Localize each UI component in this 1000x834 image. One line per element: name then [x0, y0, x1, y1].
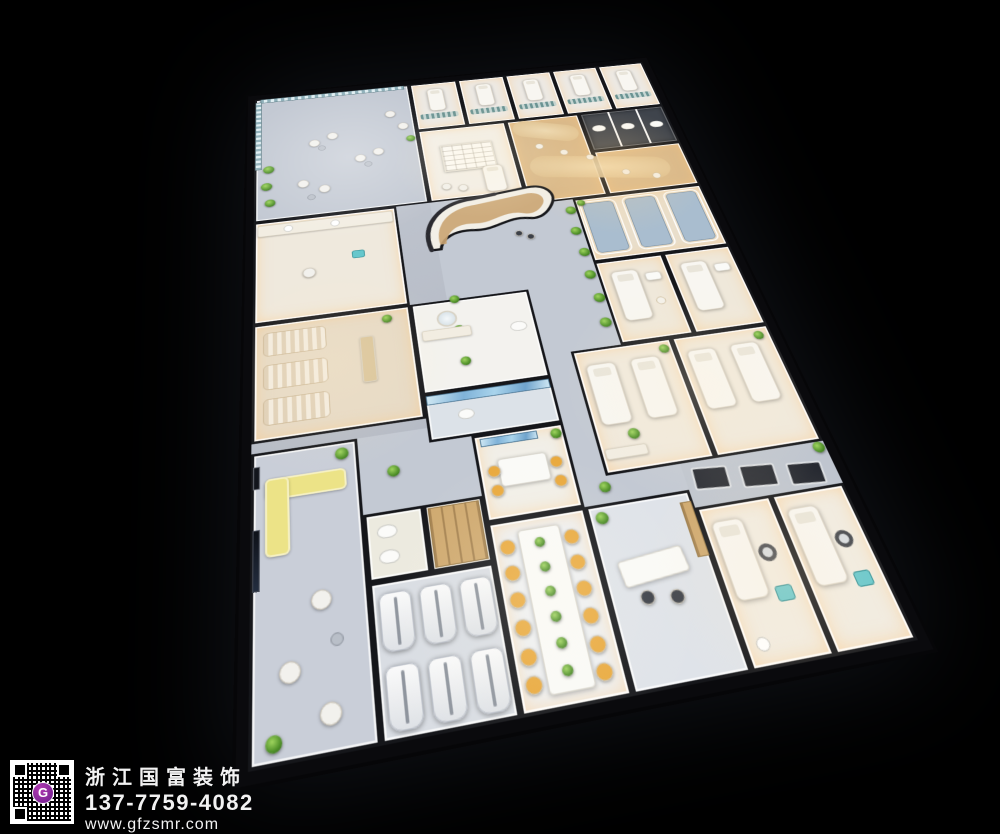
qr-code: G: [10, 760, 74, 824]
qr-finder-icon: [13, 807, 27, 821]
locker: [428, 500, 489, 568]
windowv: [255, 103, 262, 171]
website-url: www.gfzsmr.com: [85, 816, 254, 834]
floorplan: [248, 62, 918, 772]
sofa: [265, 476, 290, 558]
recliner: [385, 661, 426, 733]
cart: [352, 249, 365, 258]
company-name: 浙江国富装饰: [85, 761, 254, 790]
tv: [252, 530, 260, 593]
mat: [690, 465, 732, 491]
phone-number: 137-7759-4082: [85, 790, 254, 816]
watermark: G 浙江国富装饰 137-7759-4082 www.gfzsmr.com: [10, 760, 254, 824]
qr-finder-icon: [13, 763, 27, 777]
band: [530, 156, 673, 178]
frame: [253, 467, 260, 491]
floorplan-3d-render: [0, 0, 1000, 833]
room-reception-lounge: [254, 85, 430, 223]
recliner: [378, 589, 416, 654]
mat: [738, 463, 781, 489]
room-wc-room: [363, 505, 432, 583]
qr-logo-icon: G: [32, 782, 54, 804]
qr-finder-icon: [57, 763, 71, 777]
render-canvas: { "watermark": { "company": "浙江国富装饰", "p…: [0, 0, 1000, 833]
watermark-text: 浙江国富装饰 137-7759-4082 www.gfzsmr.com: [85, 761, 254, 823]
